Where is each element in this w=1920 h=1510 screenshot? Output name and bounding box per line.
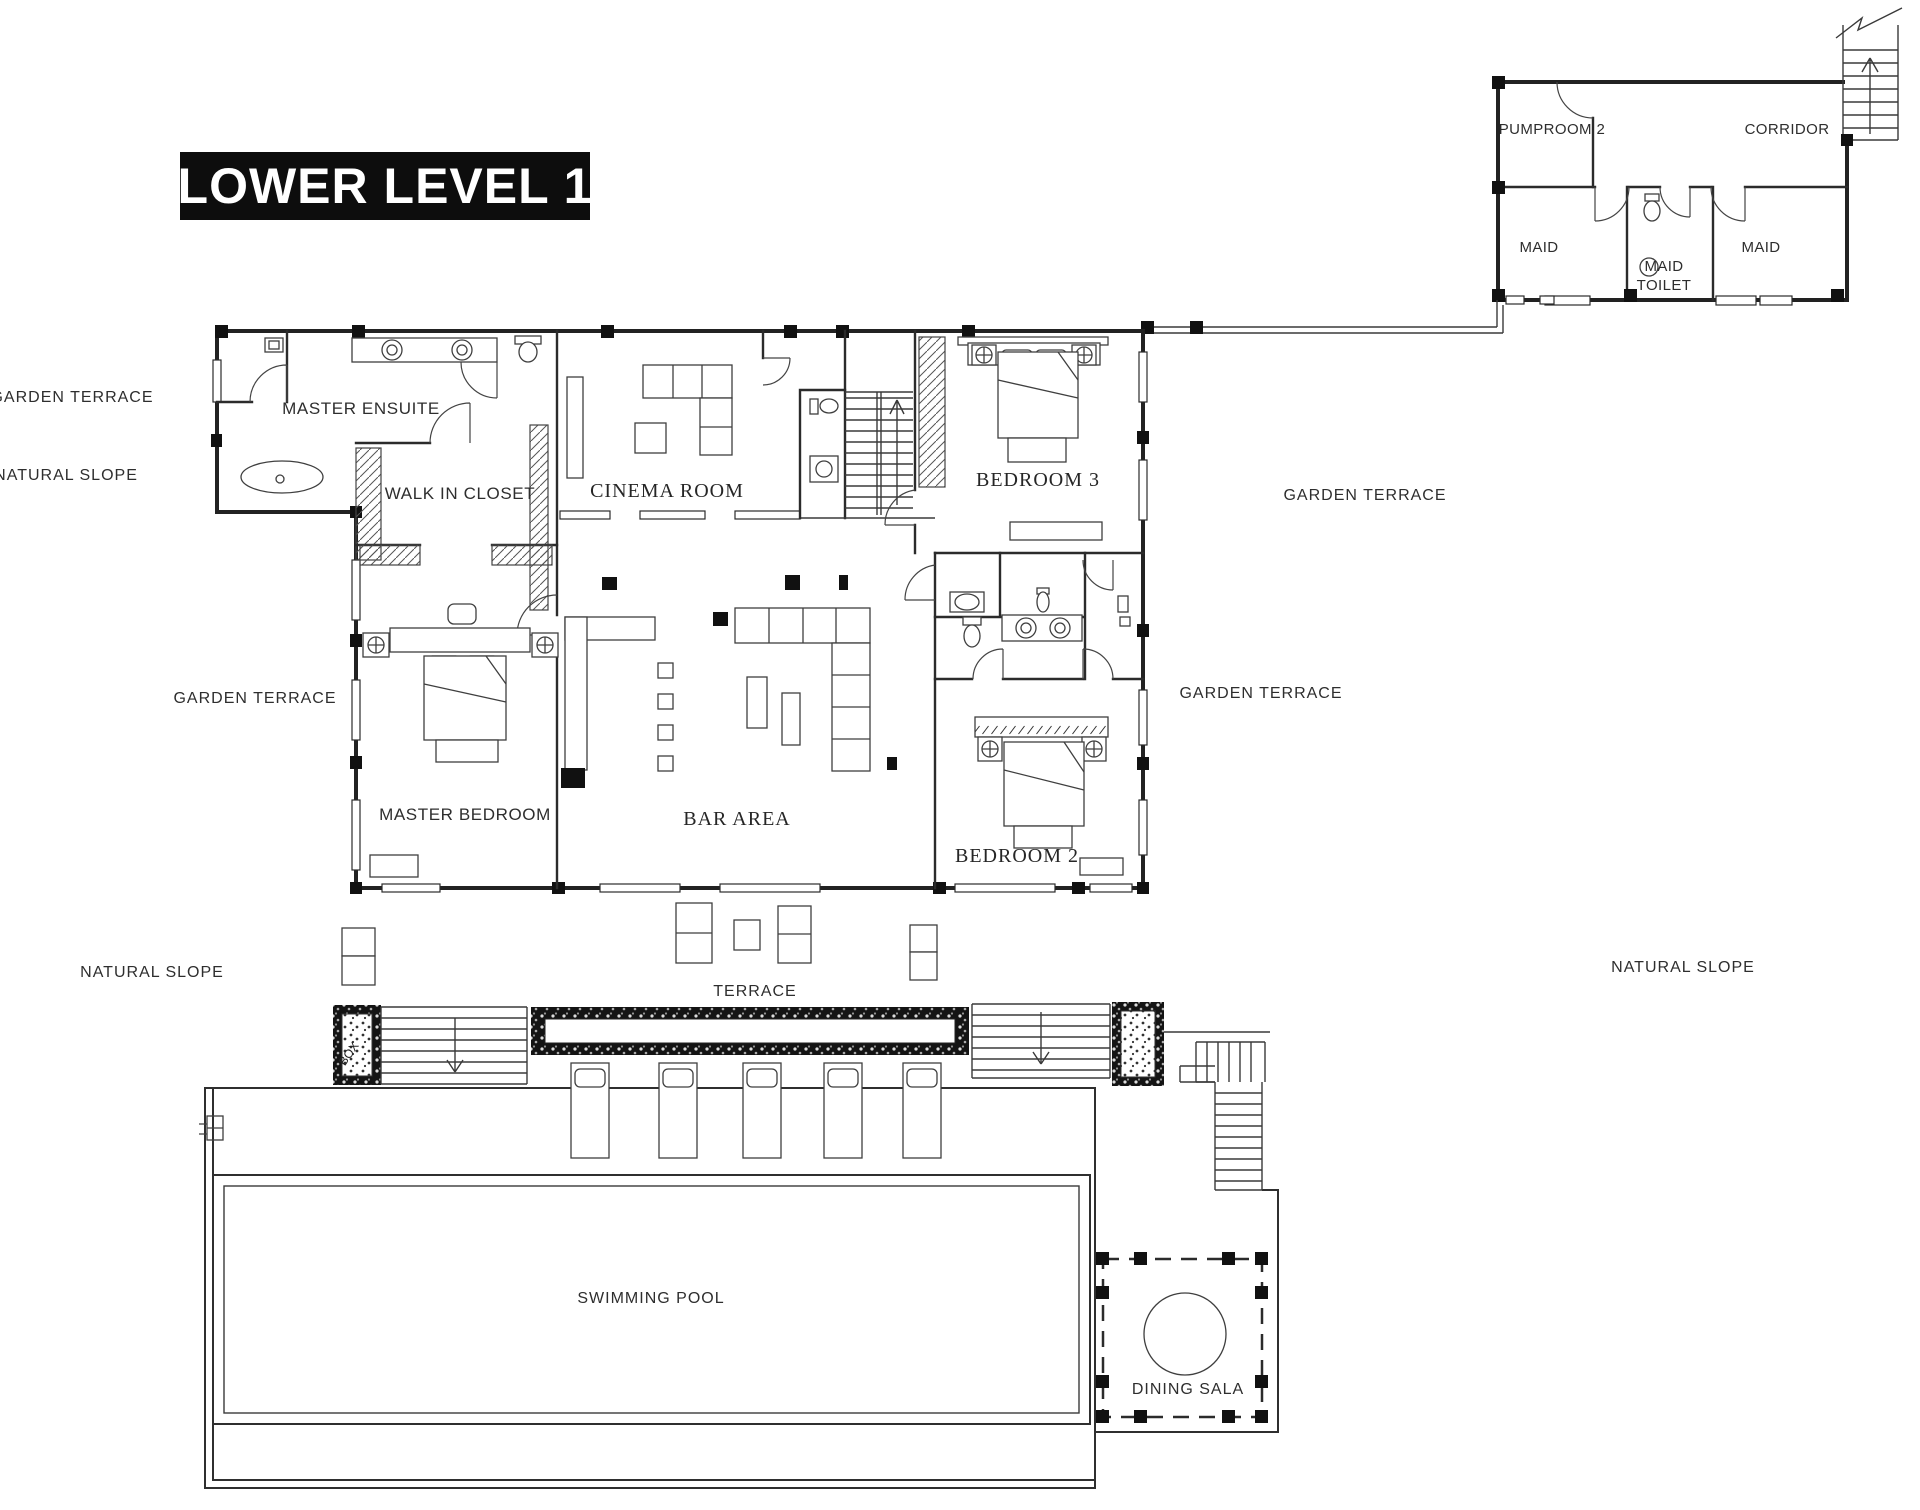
vanity-sinks-icon bbox=[352, 338, 497, 362]
wardrobe-icon bbox=[356, 448, 381, 560]
bench-icon bbox=[370, 855, 418, 877]
room-bedroom3: BEDROOM 3 bbox=[919, 337, 1108, 540]
door-arc-maid-toilet bbox=[1660, 187, 1690, 217]
lounger-icon bbox=[659, 1063, 697, 1158]
room-label-pumproom2: PUMPROOM 2 bbox=[1499, 121, 1606, 138]
dining-table-icon bbox=[1144, 1293, 1226, 1375]
stairs-icon bbox=[1180, 1042, 1265, 1190]
toilet-icon bbox=[810, 399, 838, 414]
service-wing: PUMPROOM 2 CORRIDOR MAID MAID TOILET MAI… bbox=[1492, 8, 1902, 305]
room-master-bedroom: MASTER BEDROOM bbox=[363, 595, 558, 888]
door-panel-icon bbox=[342, 928, 375, 985]
room-bedroom2: BEDROOM 2 bbox=[905, 565, 1123, 875]
room-label-master-bedroom: MASTER BEDROOM bbox=[379, 805, 551, 824]
title-block: LOWER LEVEL 1 bbox=[178, 152, 593, 220]
pool-deck: SWIMMING POOL bbox=[199, 1063, 1095, 1488]
table-icon bbox=[747, 677, 767, 728]
toilet-icon bbox=[515, 336, 541, 362]
stairs-icon bbox=[1836, 8, 1902, 140]
room-cinema: CINEMA ROOM bbox=[560, 331, 800, 519]
dining-sala: DINING SALA bbox=[1096, 1252, 1268, 1423]
bidet-icon bbox=[1037, 588, 1049, 612]
room-label-cinema: CINEMA ROOM bbox=[590, 480, 744, 502]
site-label-garden-terrace-top-left: GARDEN TERRACE bbox=[0, 389, 154, 406]
floorplan-canvas: LOWER LEVEL 1 bbox=[0, 0, 1920, 1510]
bed-icon bbox=[363, 604, 558, 762]
door-panel-icon bbox=[910, 925, 937, 980]
steps-right bbox=[972, 1004, 1110, 1078]
tv-cabinet-icon bbox=[567, 377, 583, 478]
room-label-bedroom2: BEDROOM 2 bbox=[955, 845, 1079, 867]
site-label-natural-slope-top-left: NATURAL SLOPE bbox=[0, 467, 138, 484]
armchair-icon bbox=[676, 903, 712, 963]
lounger-icon bbox=[903, 1063, 941, 1158]
terrace-area: TERRACE bbox=[342, 903, 937, 1000]
sofa-icon bbox=[635, 365, 732, 455]
planter-long bbox=[531, 1007, 969, 1055]
floorplan-page: LOWER LEVEL 1 bbox=[0, 0, 1920, 1510]
washbasin-icon bbox=[810, 456, 838, 482]
area-label-swimming-pool: SWIMMING POOL bbox=[577, 1290, 724, 1307]
swimming-pool: SWIMMING POOL bbox=[213, 1175, 1090, 1424]
door-arc-pumproom bbox=[1557, 82, 1593, 118]
closet-cabinet-icon bbox=[360, 545, 420, 565]
bed-icon bbox=[975, 717, 1108, 848]
planter-box-left: BOX bbox=[333, 1005, 381, 1085]
armchair-icon bbox=[778, 906, 811, 963]
site-label-garden-terrace-mid-right: GARDEN TERRACE bbox=[1179, 685, 1342, 702]
shower-fixture-icon bbox=[1118, 596, 1130, 626]
site-label-garden-terrace-top-right: GARDEN TERRACE bbox=[1283, 487, 1446, 504]
sala-deck bbox=[1095, 1032, 1278, 1432]
area-label-terrace: TERRACE bbox=[713, 983, 796, 1000]
stair-hall bbox=[800, 331, 935, 553]
room-label-maid-right: MAID bbox=[1741, 239, 1780, 256]
room-walk-in-closet: WALK IN CLOSET bbox=[356, 331, 557, 615]
room-label-corridor: CORRIDOR bbox=[1745, 121, 1830, 138]
planter-box-right bbox=[1112, 1002, 1164, 1086]
table-icon bbox=[782, 693, 800, 745]
steps-left bbox=[381, 1007, 527, 1084]
page-title: LOWER LEVEL 1 bbox=[178, 158, 593, 214]
site-label-natural-slope-bottom-left: NATURAL SLOPE bbox=[80, 964, 224, 981]
closet-cabinet-icon bbox=[492, 545, 552, 565]
room-label-bar-area: BAR AREA bbox=[683, 808, 790, 830]
pool-ladder-icon bbox=[199, 1116, 223, 1140]
area-label-dining-sala: DINING SALA bbox=[1132, 1381, 1244, 1398]
room-label-master-ensuite: MASTER ENSUITE bbox=[282, 399, 440, 418]
bed-icon bbox=[958, 337, 1108, 462]
site-label-garden-terrace-mid-left: GARDEN TERRACE bbox=[173, 690, 336, 707]
sun-loungers bbox=[571, 1063, 941, 1158]
wc-room bbox=[800, 390, 845, 518]
side-table-icon bbox=[734, 920, 760, 950]
toilet-icon bbox=[963, 617, 981, 647]
bar-counter-icon bbox=[561, 617, 673, 788]
bathtub-icon bbox=[241, 461, 323, 493]
washbasin-icon bbox=[950, 592, 984, 612]
room-label-maid-toilet-2: TOILET bbox=[1637, 277, 1692, 294]
bench-icon bbox=[1080, 858, 1123, 875]
door-arc-maid-left bbox=[1595, 187, 1629, 221]
site-label-natural-slope-bottom-right: NATURAL SLOPE bbox=[1611, 959, 1755, 976]
lounger-icon bbox=[571, 1063, 609, 1158]
lounger-icon bbox=[743, 1063, 781, 1158]
room-label-walk-in-closet: WALK IN CLOSET bbox=[385, 484, 535, 503]
toilet-icon bbox=[265, 338, 283, 352]
wardrobe-icon bbox=[919, 337, 945, 487]
room-label-maid-left: MAID bbox=[1519, 239, 1558, 256]
door-arc-maid-right bbox=[1711, 187, 1745, 221]
room-label-bedroom3: BEDROOM 3 bbox=[976, 469, 1100, 491]
room-bar-area: BAR AREA bbox=[561, 575, 897, 830]
vanity-sinks-icon bbox=[1002, 615, 1082, 641]
room-label-maid-toilet-1: MAID bbox=[1644, 258, 1683, 275]
lounger-icon bbox=[824, 1063, 862, 1158]
wardrobe-icon bbox=[530, 425, 548, 610]
bench-icon bbox=[1010, 522, 1102, 540]
